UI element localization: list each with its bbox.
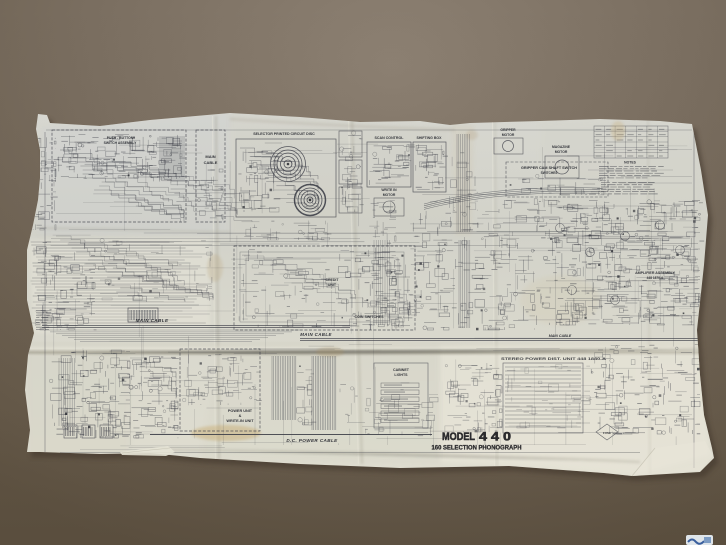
svg-text:MOTOR: MOTOR xyxy=(383,193,396,197)
svg-text:MOTOR: MOTOR xyxy=(555,150,568,154)
svg-text:448 1870-A: 448 1870-A xyxy=(647,276,664,280)
svg-text:GRIPPER: GRIPPER xyxy=(500,128,516,132)
svg-text:SCAN CONTROL: SCAN CONTROL xyxy=(375,136,405,140)
svg-text:POWER UNIT: POWER UNIT xyxy=(228,409,253,413)
svg-text:MAIN CABLE: MAIN CABLE xyxy=(300,332,332,337)
svg-text:SWITCH ASSEMBLY: SWITCH ASSEMBLY xyxy=(104,141,137,145)
svg-text:MODEL: MODEL xyxy=(442,431,475,443)
svg-text:NOTES: NOTES xyxy=(624,161,636,165)
svg-text:FUSE: FUSE xyxy=(603,431,611,435)
svg-text:LIGHTS: LIGHTS xyxy=(394,373,408,377)
svg-text:MAIN CABLE: MAIN CABLE xyxy=(136,318,169,323)
svg-text:MAIN CABLE: MAIN CABLE xyxy=(549,334,572,338)
svg-text:160 SELECTION PHONOGRAPH: 160 SELECTION PHONOGRAPH xyxy=(432,445,522,452)
svg-text:SELECTOR PRINTED CIRCUIT DISC: SELECTOR PRINTED CIRCUIT DISC xyxy=(253,132,315,136)
svg-text:COIN SWITCHES: COIN SWITCHES xyxy=(355,315,385,319)
svg-text:SHIFTING BOX: SHIFTING BOX xyxy=(417,136,443,140)
svg-text:MAIN: MAIN xyxy=(205,154,215,159)
svg-text:PUSH - BUTTON: PUSH - BUTTON xyxy=(107,136,134,140)
svg-text:GRIPPER CAM SHAFT SWITCH: GRIPPER CAM SHAFT SWITCH xyxy=(521,166,578,170)
svg-text:MOTOR: MOTOR xyxy=(502,133,515,137)
svg-text:SWITCHES: SWITCHES xyxy=(541,171,558,175)
svg-text:STEREO POWER DIST. UNIT 448: STEREO POWER DIST. UNIT 448 1880-A xyxy=(501,357,607,361)
svg-text:WRITE-IN UNIT: WRITE-IN UNIT xyxy=(226,419,254,423)
svg-text:WRITE IN: WRITE IN xyxy=(381,188,397,192)
svg-text:D.C. POWER CABLE: D.C. POWER CABLE xyxy=(286,438,338,443)
svg-text:MAGAZINE: MAGAZINE xyxy=(552,145,571,149)
svg-text:4 4 0: 4 4 0 xyxy=(479,430,511,444)
svg-text:AMPLIFIER ASSEMBLY: AMPLIFIER ASSEMBLY xyxy=(635,271,675,275)
svg-text:CABINET: CABINET xyxy=(393,368,410,372)
svg-text:CABLE: CABLE xyxy=(204,160,218,165)
svg-text:&: & xyxy=(239,414,242,418)
